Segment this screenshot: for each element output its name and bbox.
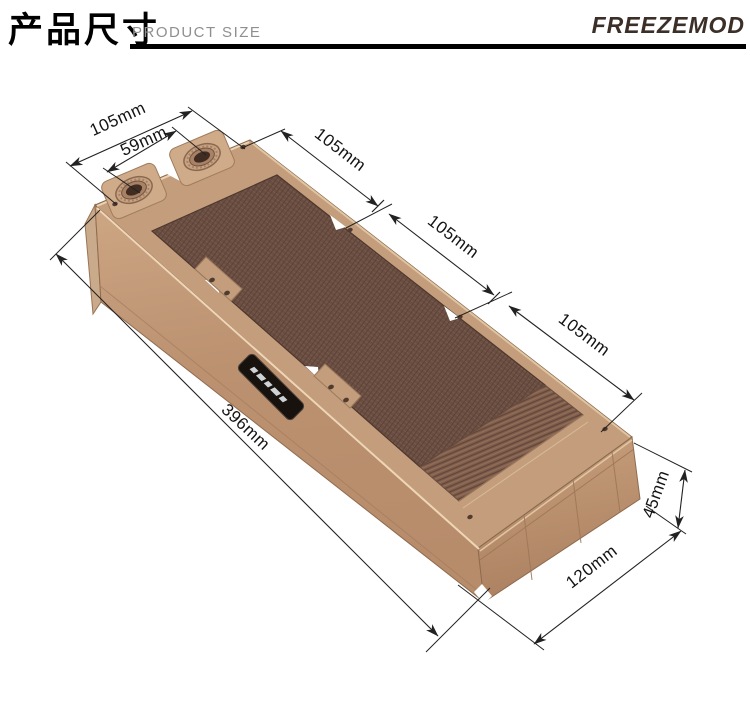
dimension-label-height: 45mm xyxy=(638,468,673,521)
dimension-label-fan-pitch-2: 105mm xyxy=(424,211,483,262)
brand-logo: FREEZEMOD xyxy=(592,12,745,39)
page-subtitle: PRODUCT SIZE xyxy=(132,24,261,41)
product-dimension-diagram: 105mm 59mm 105mm 105mm 105mm 396mm 45mm … xyxy=(0,0,750,717)
page: 105mm 59mm 105mm 105mm 105mm 396mm 45mm … xyxy=(0,0,750,717)
header-divider xyxy=(130,44,746,49)
dim-line-height xyxy=(678,470,685,528)
dimension-label-fan-pitch-3: 105mm xyxy=(555,309,614,360)
dimension-label-port-spacing: 59mm xyxy=(117,122,170,160)
dimension-label-fan-pitch-1: 105mm xyxy=(311,124,370,175)
